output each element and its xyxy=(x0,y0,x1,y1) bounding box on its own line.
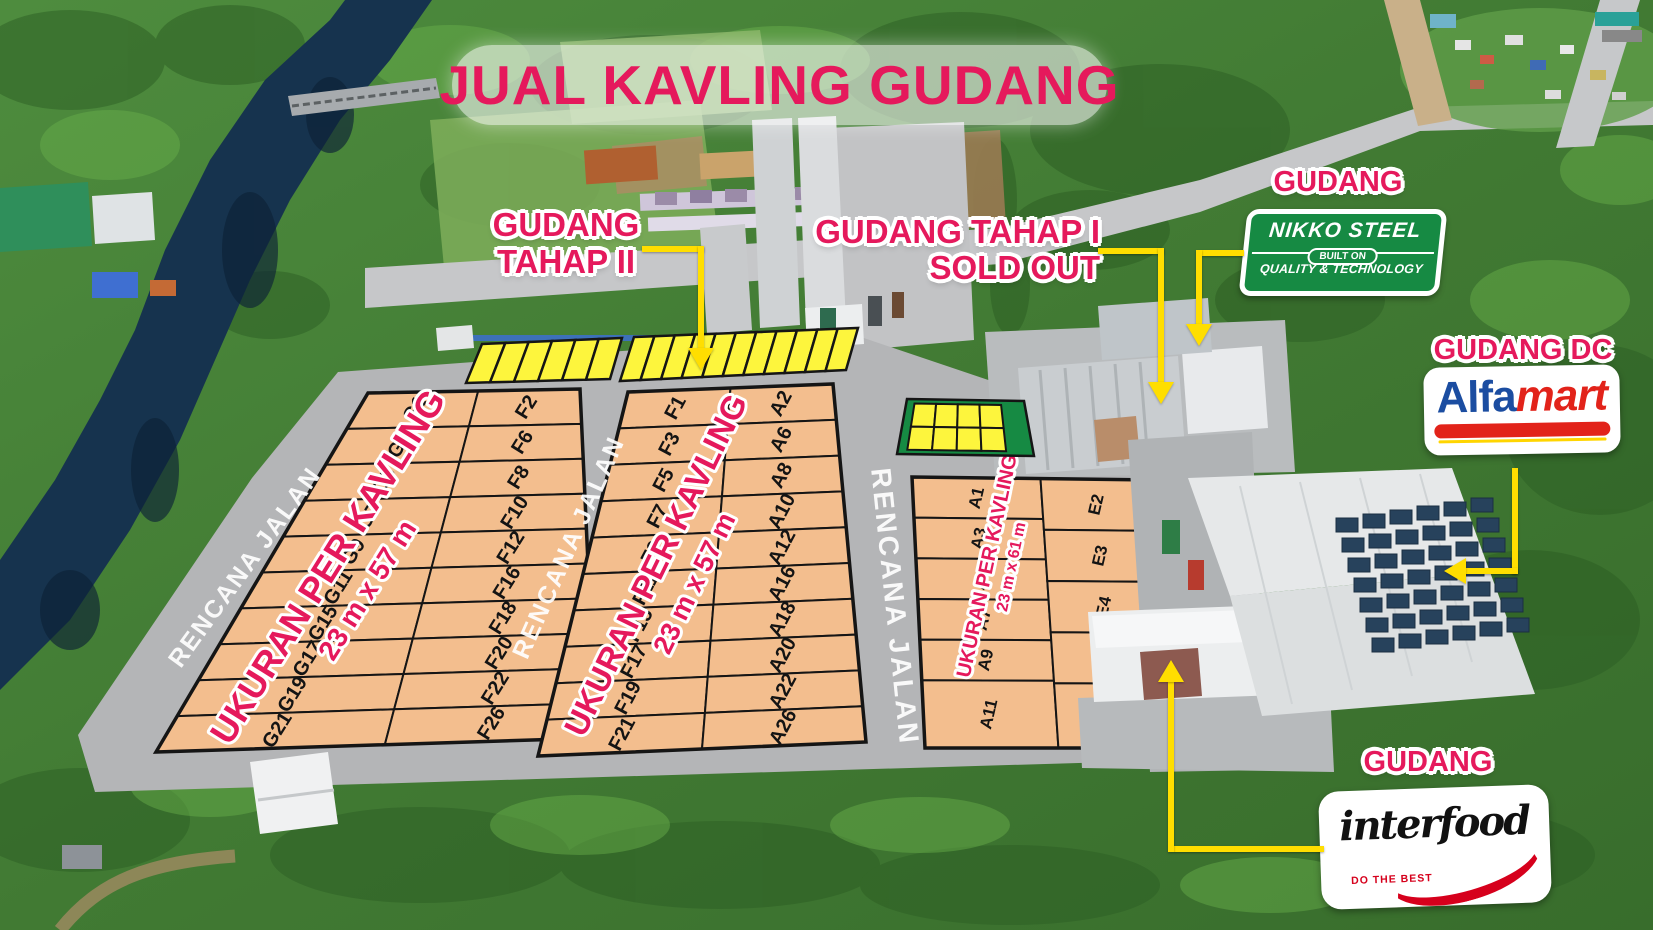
nikko-built-on-badge: BUILT ON xyxy=(1306,248,1378,265)
tahap2-line1: GUDANG xyxy=(486,206,646,243)
nikko-arrow-icon xyxy=(1186,324,1212,346)
solar-panel xyxy=(1507,618,1529,632)
solar-panel xyxy=(1468,582,1490,596)
tahap1-line2: SOLD OUT xyxy=(800,250,1100,286)
solar-panel xyxy=(1456,542,1478,556)
solar-panel xyxy=(1402,550,1424,564)
nikko-steel-sign: NIKKO STEEL BUILT ON QUALITY & TECHNOLOG… xyxy=(1238,209,1447,296)
nikko-connector-v xyxy=(1196,250,1202,326)
solar-panel xyxy=(1441,586,1463,600)
green-grid-cell xyxy=(932,427,957,451)
alfamart-yellow-bar xyxy=(1439,438,1607,444)
solar-panel xyxy=(1471,498,1493,512)
solar-panel xyxy=(1453,626,1475,640)
green-grid-cell xyxy=(907,427,934,451)
alfamart-logo: Alfamart xyxy=(1423,364,1621,455)
solar-panel xyxy=(1447,606,1469,620)
solar-panel xyxy=(1399,634,1421,648)
page-title: JUAL KAVLING GUDANG xyxy=(452,45,1107,125)
solar-panel xyxy=(1342,538,1364,552)
tahap1-arrow-icon xyxy=(1148,382,1174,404)
plot-plan-layer: G1G3G5G7G9G11G15G17G19G21F2F6F8F10F12F16… xyxy=(156,328,1172,756)
tahap1-line1: GUDANG TAHAP I xyxy=(800,214,1100,250)
interfood-connector-h xyxy=(1174,846,1324,852)
title-banner: JUAL KAVLING GUDANG xyxy=(452,45,1107,125)
foreground-buildings xyxy=(1078,432,1535,772)
tahap1-connector-v xyxy=(1158,248,1164,384)
alfamart-red-bar xyxy=(1434,421,1610,438)
solar-panel xyxy=(1372,638,1394,652)
solar-panel xyxy=(1420,610,1442,624)
green-grid-cell xyxy=(980,428,1006,452)
alfamart-connector-v xyxy=(1512,468,1518,574)
solar-panel xyxy=(1417,506,1439,520)
nikko-gudang-label: GUDANG xyxy=(1252,166,1424,199)
interfood-gudang-label: GUDANG xyxy=(1338,746,1518,779)
solar-panel xyxy=(1483,538,1505,552)
alfamart-arrow-icon xyxy=(1444,558,1466,584)
green-grid-cell xyxy=(979,405,1003,429)
callout-gudang-tahap-1: GUDANG TAHAP I SOLD OUT xyxy=(800,214,1100,286)
solar-panel xyxy=(1369,534,1391,548)
alfamart-brand: Alfamart xyxy=(1423,370,1620,423)
interfood-connector-v xyxy=(1168,682,1174,852)
tahap2-connector-h xyxy=(642,246,704,252)
interfood-logo: interfood DO THE BEST xyxy=(1318,784,1552,910)
tahap2-arrow-icon xyxy=(688,348,714,370)
solar-panel xyxy=(1363,514,1385,528)
nikko-brand: NIKKO STEEL xyxy=(1249,219,1442,243)
callout-gudang-tahap-2: GUDANG TAHAP II xyxy=(486,206,646,280)
nikko-divider: BUILT ON xyxy=(1247,246,1438,260)
alfamart-gudang-label: GUDANG DC xyxy=(1428,334,1618,367)
solar-panel xyxy=(1366,618,1388,632)
solar-panel xyxy=(1444,502,1466,516)
alfamart-brand-red: mart xyxy=(1515,371,1607,423)
solar-panel xyxy=(1477,518,1499,532)
alfamart-brand-blue: Alfa xyxy=(1436,372,1516,423)
solar-panel xyxy=(1426,630,1448,644)
solar-panel xyxy=(1390,510,1412,524)
solar-panel xyxy=(1360,598,1382,612)
green-grid-cell xyxy=(957,404,980,427)
tahap1-connector-h xyxy=(1098,248,1164,254)
solar-panel xyxy=(1381,574,1403,588)
solar-panel xyxy=(1450,522,1472,536)
poster-canvas: G1G3G5G7G9G11G15G17G19G21F2F6F8F10F12F16… xyxy=(0,0,1653,930)
tahap2-connector-v xyxy=(698,246,704,350)
green-grid-cell xyxy=(957,427,982,450)
solar-panel xyxy=(1348,558,1370,572)
solar-panel xyxy=(1414,590,1436,604)
green-grid-cell xyxy=(911,404,936,428)
alfamart-connector-h xyxy=(1464,568,1518,574)
solar-panel xyxy=(1423,526,1445,540)
nikko-connector-h xyxy=(1202,250,1244,256)
solar-panel xyxy=(1354,578,1376,592)
green-grid-cell xyxy=(934,404,958,428)
solar-panel xyxy=(1474,602,1496,616)
solar-panel xyxy=(1375,554,1397,568)
solar-panel xyxy=(1495,578,1517,592)
solar-panel xyxy=(1396,530,1418,544)
solar-panel xyxy=(1501,598,1523,612)
solar-panel xyxy=(1408,570,1430,584)
interfood-arrow-icon xyxy=(1158,660,1184,682)
solar-panel xyxy=(1336,518,1358,532)
solar-panel xyxy=(1387,594,1409,608)
tahap2-line2: TAHAP II xyxy=(486,243,646,280)
solar-panel xyxy=(1480,622,1502,636)
solar-panel xyxy=(1393,614,1415,628)
